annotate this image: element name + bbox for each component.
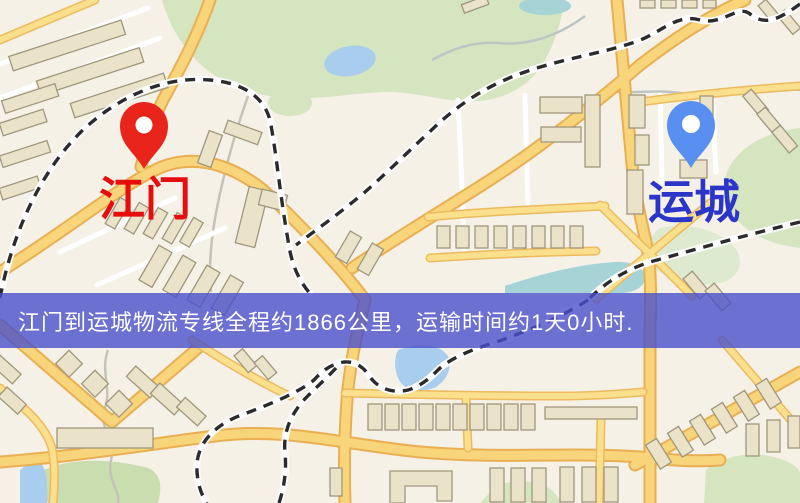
map-image <box>0 0 800 503</box>
route-info-text: 江门到运城物流专线全程约1866公里，运输时间约1天0小时. <box>18 305 634 337</box>
origin-city-label: 江门 <box>99 176 191 222</box>
map-screenshot: 江门 运城 江门到运城物流专线全程约1866公里，运输时间约1天0小时. <box>0 0 800 503</box>
destination-city-label: 运城 <box>648 179 740 225</box>
route-info-banner: 江门到运城物流专线全程约1866公里，运输时间约1天0小时. <box>0 293 800 348</box>
origin-pin-icon <box>120 102 168 169</box>
destination-pin-icon <box>667 101 715 168</box>
